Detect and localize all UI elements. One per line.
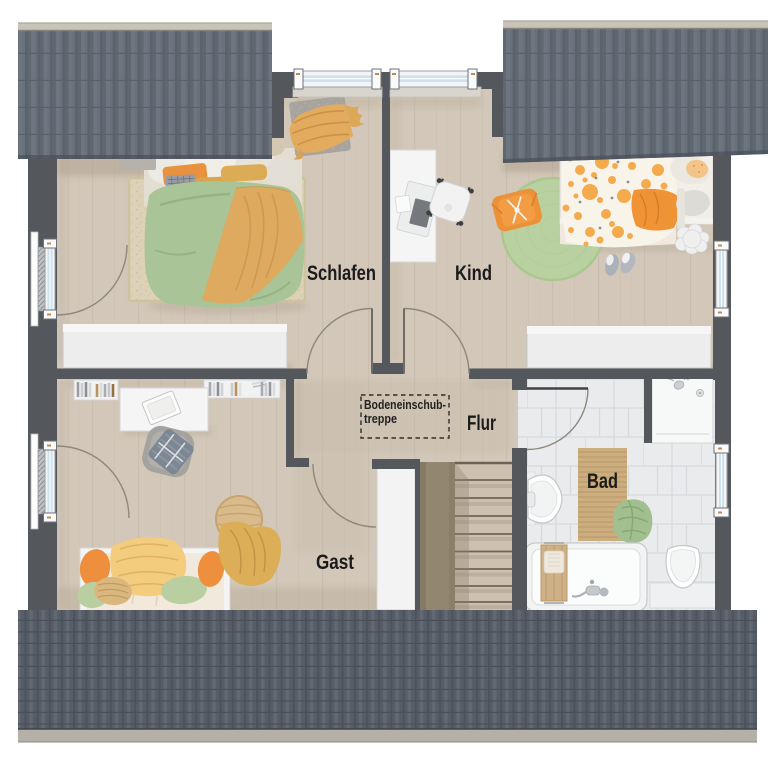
svg-text:treppe: treppe (364, 412, 397, 426)
svg-text:Gast: Gast (316, 551, 354, 574)
svg-text:Bad: Bad (587, 470, 618, 493)
svg-text:Bodeneinschub-: Bodeneinschub- (364, 398, 446, 412)
svg-text:Flur: Flur (467, 412, 496, 435)
svg-text:Schlafen: Schlafen (307, 262, 376, 285)
svg-text:Kind: Kind (455, 262, 492, 285)
